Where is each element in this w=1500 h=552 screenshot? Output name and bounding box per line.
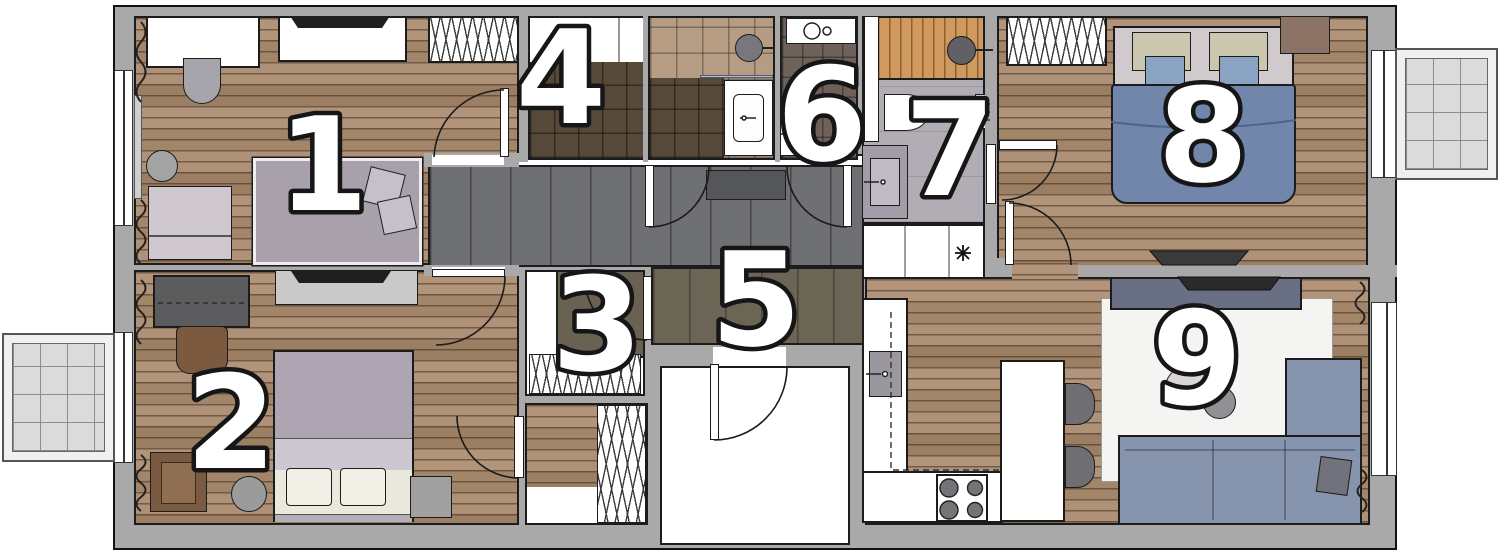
room-number-3: 3: [552, 249, 642, 401]
room-number-8: 8: [1158, 60, 1248, 212]
sofa-cushion-lines: [1125, 440, 1355, 520]
room2-tv-icon: [291, 271, 391, 283]
room1-tv-icon: [290, 16, 390, 28]
room8-tv-icon: [1150, 251, 1248, 265]
toilet-flush-icon: [804, 23, 820, 39]
toilet-flush-icon: [823, 27, 831, 35]
room-number-7: 7: [905, 74, 995, 226]
room-number-4: 4: [516, 2, 606, 154]
counter-overhang-dashed: [891, 312, 1001, 470]
room-number-1: 1: [278, 89, 368, 241]
room-number-5: 5: [711, 224, 801, 376]
room-number-6: 6: [777, 39, 867, 191]
linework-overlay: 1 2 3 4 5 6 7 8 9: [0, 0, 1500, 552]
washing-machine-icon: [955, 245, 971, 261]
room-number-9: 9: [1152, 283, 1242, 435]
floor-plan: 1 2 3 4 5 6 7 8 9: [0, 0, 1500, 552]
stove-burners: [940, 479, 983, 519]
utility-counter-dividers: [905, 226, 949, 277]
room-numbers: 1 2 3 4 5 6 7 8 9: [186, 2, 1248, 499]
room-number-2: 2: [186, 347, 276, 499]
